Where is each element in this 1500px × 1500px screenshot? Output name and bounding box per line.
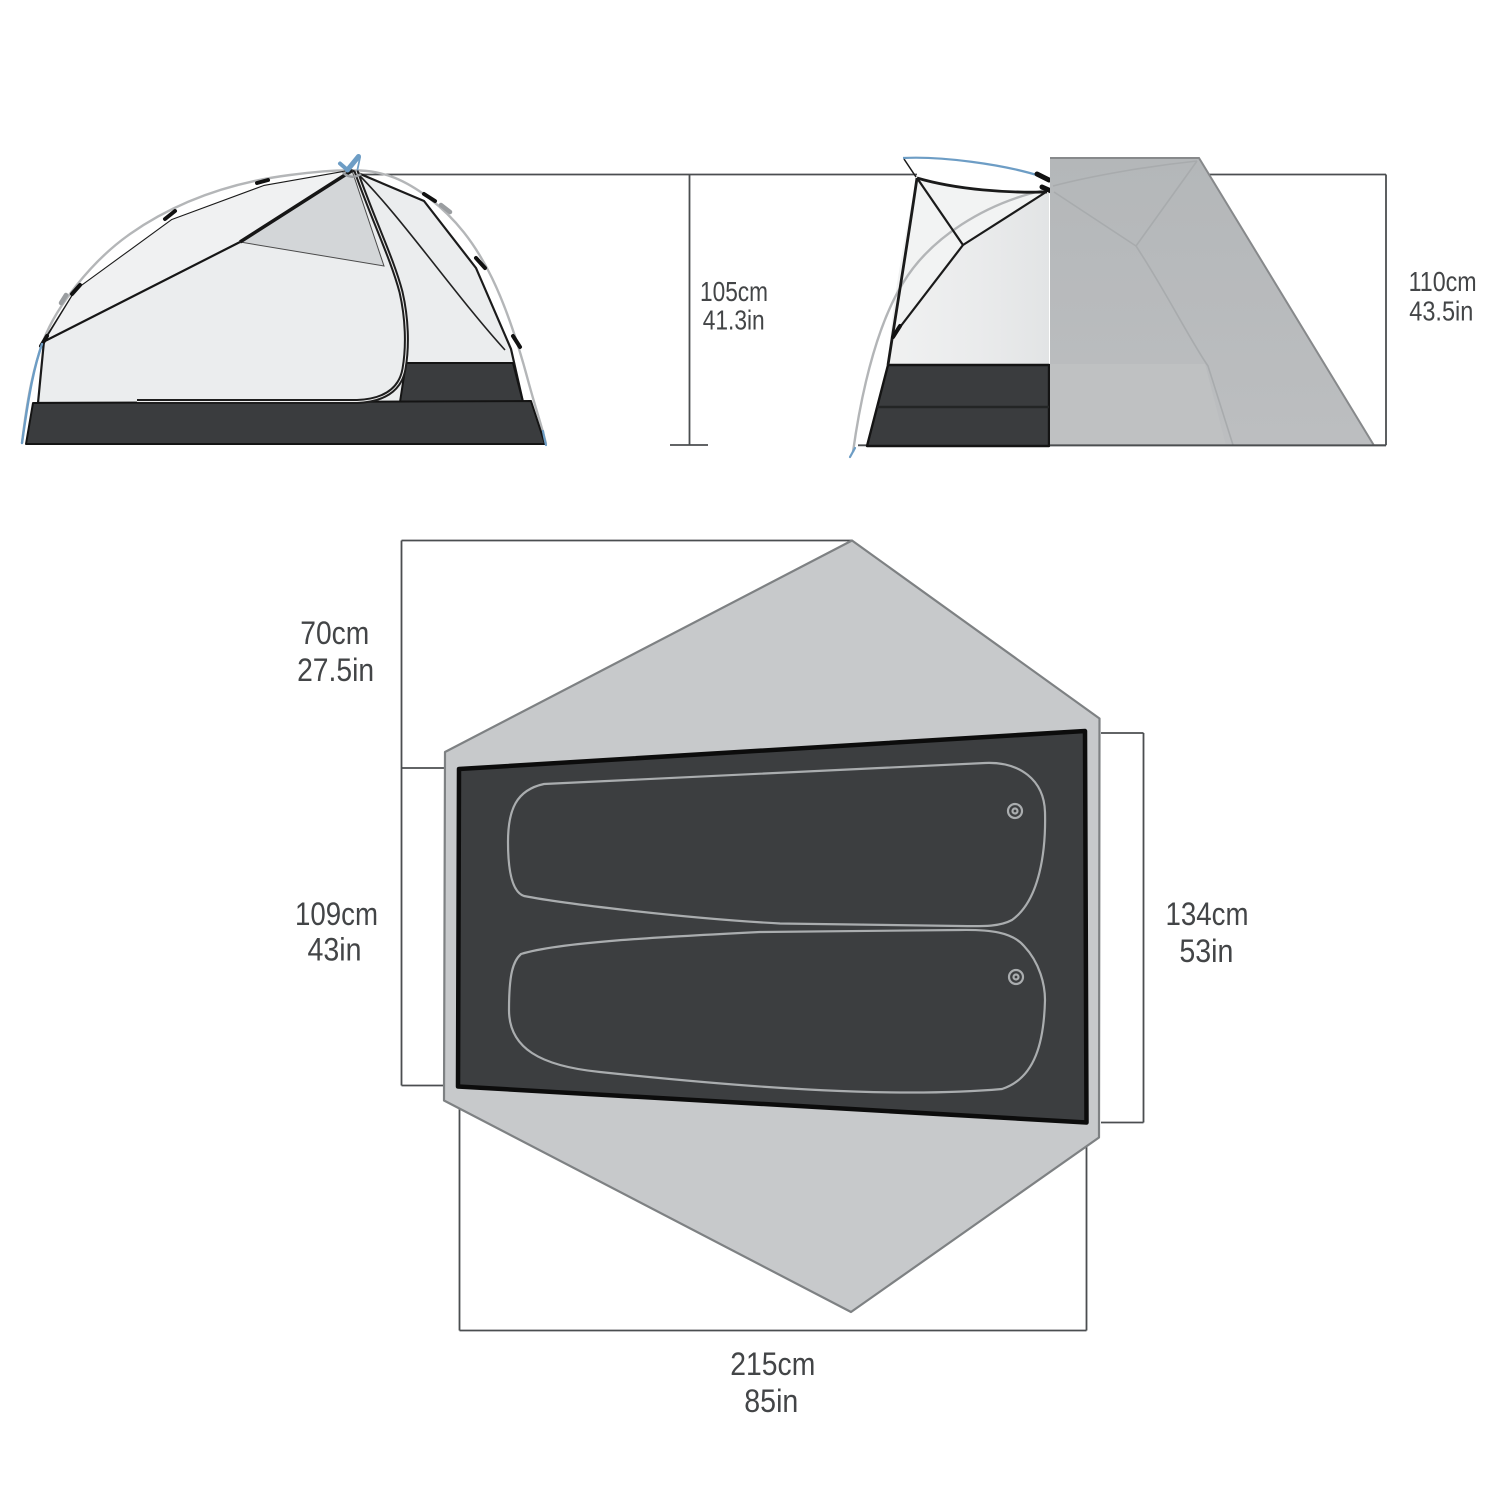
svg-text:70cm: 70cm <box>300 615 369 651</box>
svg-text:109cm: 109cm <box>295 896 378 932</box>
svg-text:41.3in: 41.3in <box>703 305 765 336</box>
svg-text:27.5in: 27.5in <box>297 652 374 688</box>
svg-text:85in: 85in <box>744 1383 798 1419</box>
svg-text:105cm: 105cm <box>700 276 768 307</box>
svg-text:53in: 53in <box>1179 933 1233 969</box>
svg-text:134cm: 134cm <box>1166 896 1249 932</box>
svg-text:43in: 43in <box>308 932 362 968</box>
svg-text:215cm: 215cm <box>730 1346 815 1382</box>
svg-text:110cm: 110cm <box>1409 266 1477 297</box>
svg-text:43.5in: 43.5in <box>1409 296 1473 327</box>
